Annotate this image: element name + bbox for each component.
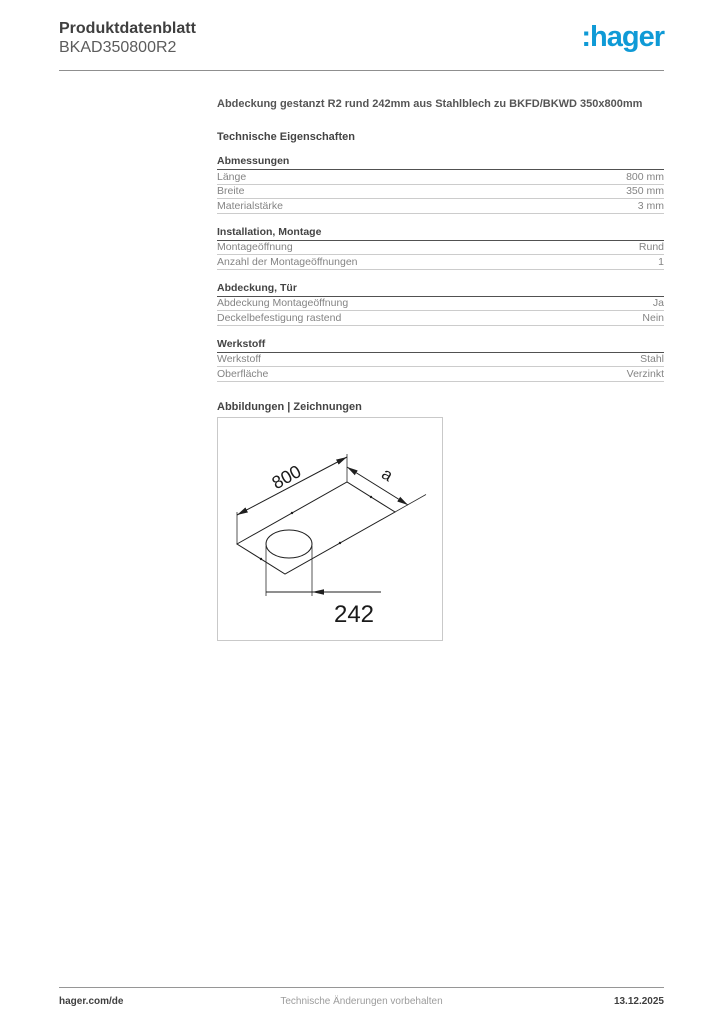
table-row: Montageöffnung Rund <box>217 241 664 256</box>
spec-value: Stahl <box>640 354 664 365</box>
spec-label: Oberfläche <box>217 369 268 380</box>
spec-table-werkstoff: Werkstoff Werkstoff Stahl Oberfläche Ver… <box>217 339 664 382</box>
spec-value: Rund <box>639 242 664 253</box>
plate-outline <box>237 482 395 574</box>
table-row: Materialstärke 3 mm <box>217 199 664 214</box>
edge-tick <box>370 495 372 497</box>
table-header: Abmessungen <box>217 156 664 170</box>
hole-ellipse <box>266 530 312 558</box>
table-row: Länge 800 mm <box>217 170 664 185</box>
spec-label: Materialstärke <box>217 201 283 212</box>
table-row: Abdeckung Montageöffnung Ja <box>217 297 664 312</box>
header-divider <box>59 70 664 71</box>
table-row: Oberfläche Verzinkt <box>217 367 664 382</box>
spec-value: 1 <box>658 257 664 268</box>
table-header: Werkstoff <box>217 339 664 353</box>
spec-table-installation-montage: Installation, Montage Montageöffnung Run… <box>217 227 664 270</box>
dim-label-800: 800 <box>269 461 305 493</box>
dim-a: a <box>347 463 426 511</box>
doc-title: Produktdatenblatt <box>59 20 196 38</box>
footer-note: Technische Änderungen vorbehalten <box>280 996 442 1007</box>
spec-label: Abdeckung Montageöffnung <box>217 298 348 309</box>
table-row: Anzahl der Montageöffnungen 1 <box>217 255 664 270</box>
table-header: Installation, Montage <box>217 227 664 241</box>
spec-value: 3 mm <box>638 201 664 212</box>
spec-table-abmessungen: Abmessungen Länge 800 mm Breite 350 mm M… <box>217 156 664 214</box>
table-row: Werkstoff Stahl <box>217 353 664 368</box>
spec-label: Deckelbefestigung rastend <box>217 313 341 324</box>
product-description: Abdeckung gestanzt R2 rund 242mm aus Sta… <box>217 98 664 111</box>
edge-tick <box>291 511 293 513</box>
hager-logo: :hager <box>581 22 664 52</box>
section-title-drawings: Abbildungen | Zeichnungen <box>217 401 664 414</box>
page-header: Produktdatenblatt BKAD350800R2 :hager <box>59 20 664 57</box>
header-left: Produktdatenblatt BKAD350800R2 <box>59 20 196 57</box>
table-header: Abdeckung, Tür <box>217 283 664 297</box>
spec-label: Montageöffnung <box>217 242 293 253</box>
edge-tick <box>260 557 262 559</box>
dim-label-242: 242 <box>334 601 374 628</box>
section-title-technical-properties: Technische Eigenschaften <box>217 131 664 144</box>
spec-value: Ja <box>653 298 664 309</box>
drawing-box: 800 a 242 <box>217 417 443 641</box>
page-footer: hager.com/de Technische Änderungen vorbe… <box>59 987 664 1007</box>
spec-value: Verzinkt <box>627 369 664 380</box>
technical-drawing: 800 a 242 <box>218 418 442 640</box>
spec-label: Anzahl der Montageöffnungen <box>217 257 358 268</box>
dim-242-arrow <box>312 589 324 595</box>
footer-website: hager.com/de <box>59 996 123 1007</box>
table-row: Deckelbefestigung rastend Nein <box>217 311 664 326</box>
spec-label: Länge <box>217 172 246 183</box>
footer-date: 13.12.2025 <box>614 996 664 1007</box>
spec-table-abdeckung-tuer: Abdeckung, Tür Abdeckung Montageöffnung … <box>217 283 664 326</box>
spec-label: Werkstoff <box>217 354 261 365</box>
edge-tick <box>339 541 341 543</box>
product-code: BKAD350800R2 <box>59 39 196 57</box>
dim-label-a: a <box>378 463 396 484</box>
datasheet-page: Produktdatenblatt BKAD350800R2 :hager Ab… <box>0 0 724 1024</box>
dim-242: 242 <box>266 546 381 628</box>
content-column: Abdeckung gestanzt R2 rund 242mm aus Sta… <box>217 98 664 641</box>
spec-value: 350 mm <box>626 186 664 197</box>
spec-value: Nein <box>642 313 664 324</box>
table-row: Breite 350 mm <box>217 185 664 200</box>
spec-value: 800 mm <box>626 172 664 183</box>
spec-label: Breite <box>217 186 244 197</box>
